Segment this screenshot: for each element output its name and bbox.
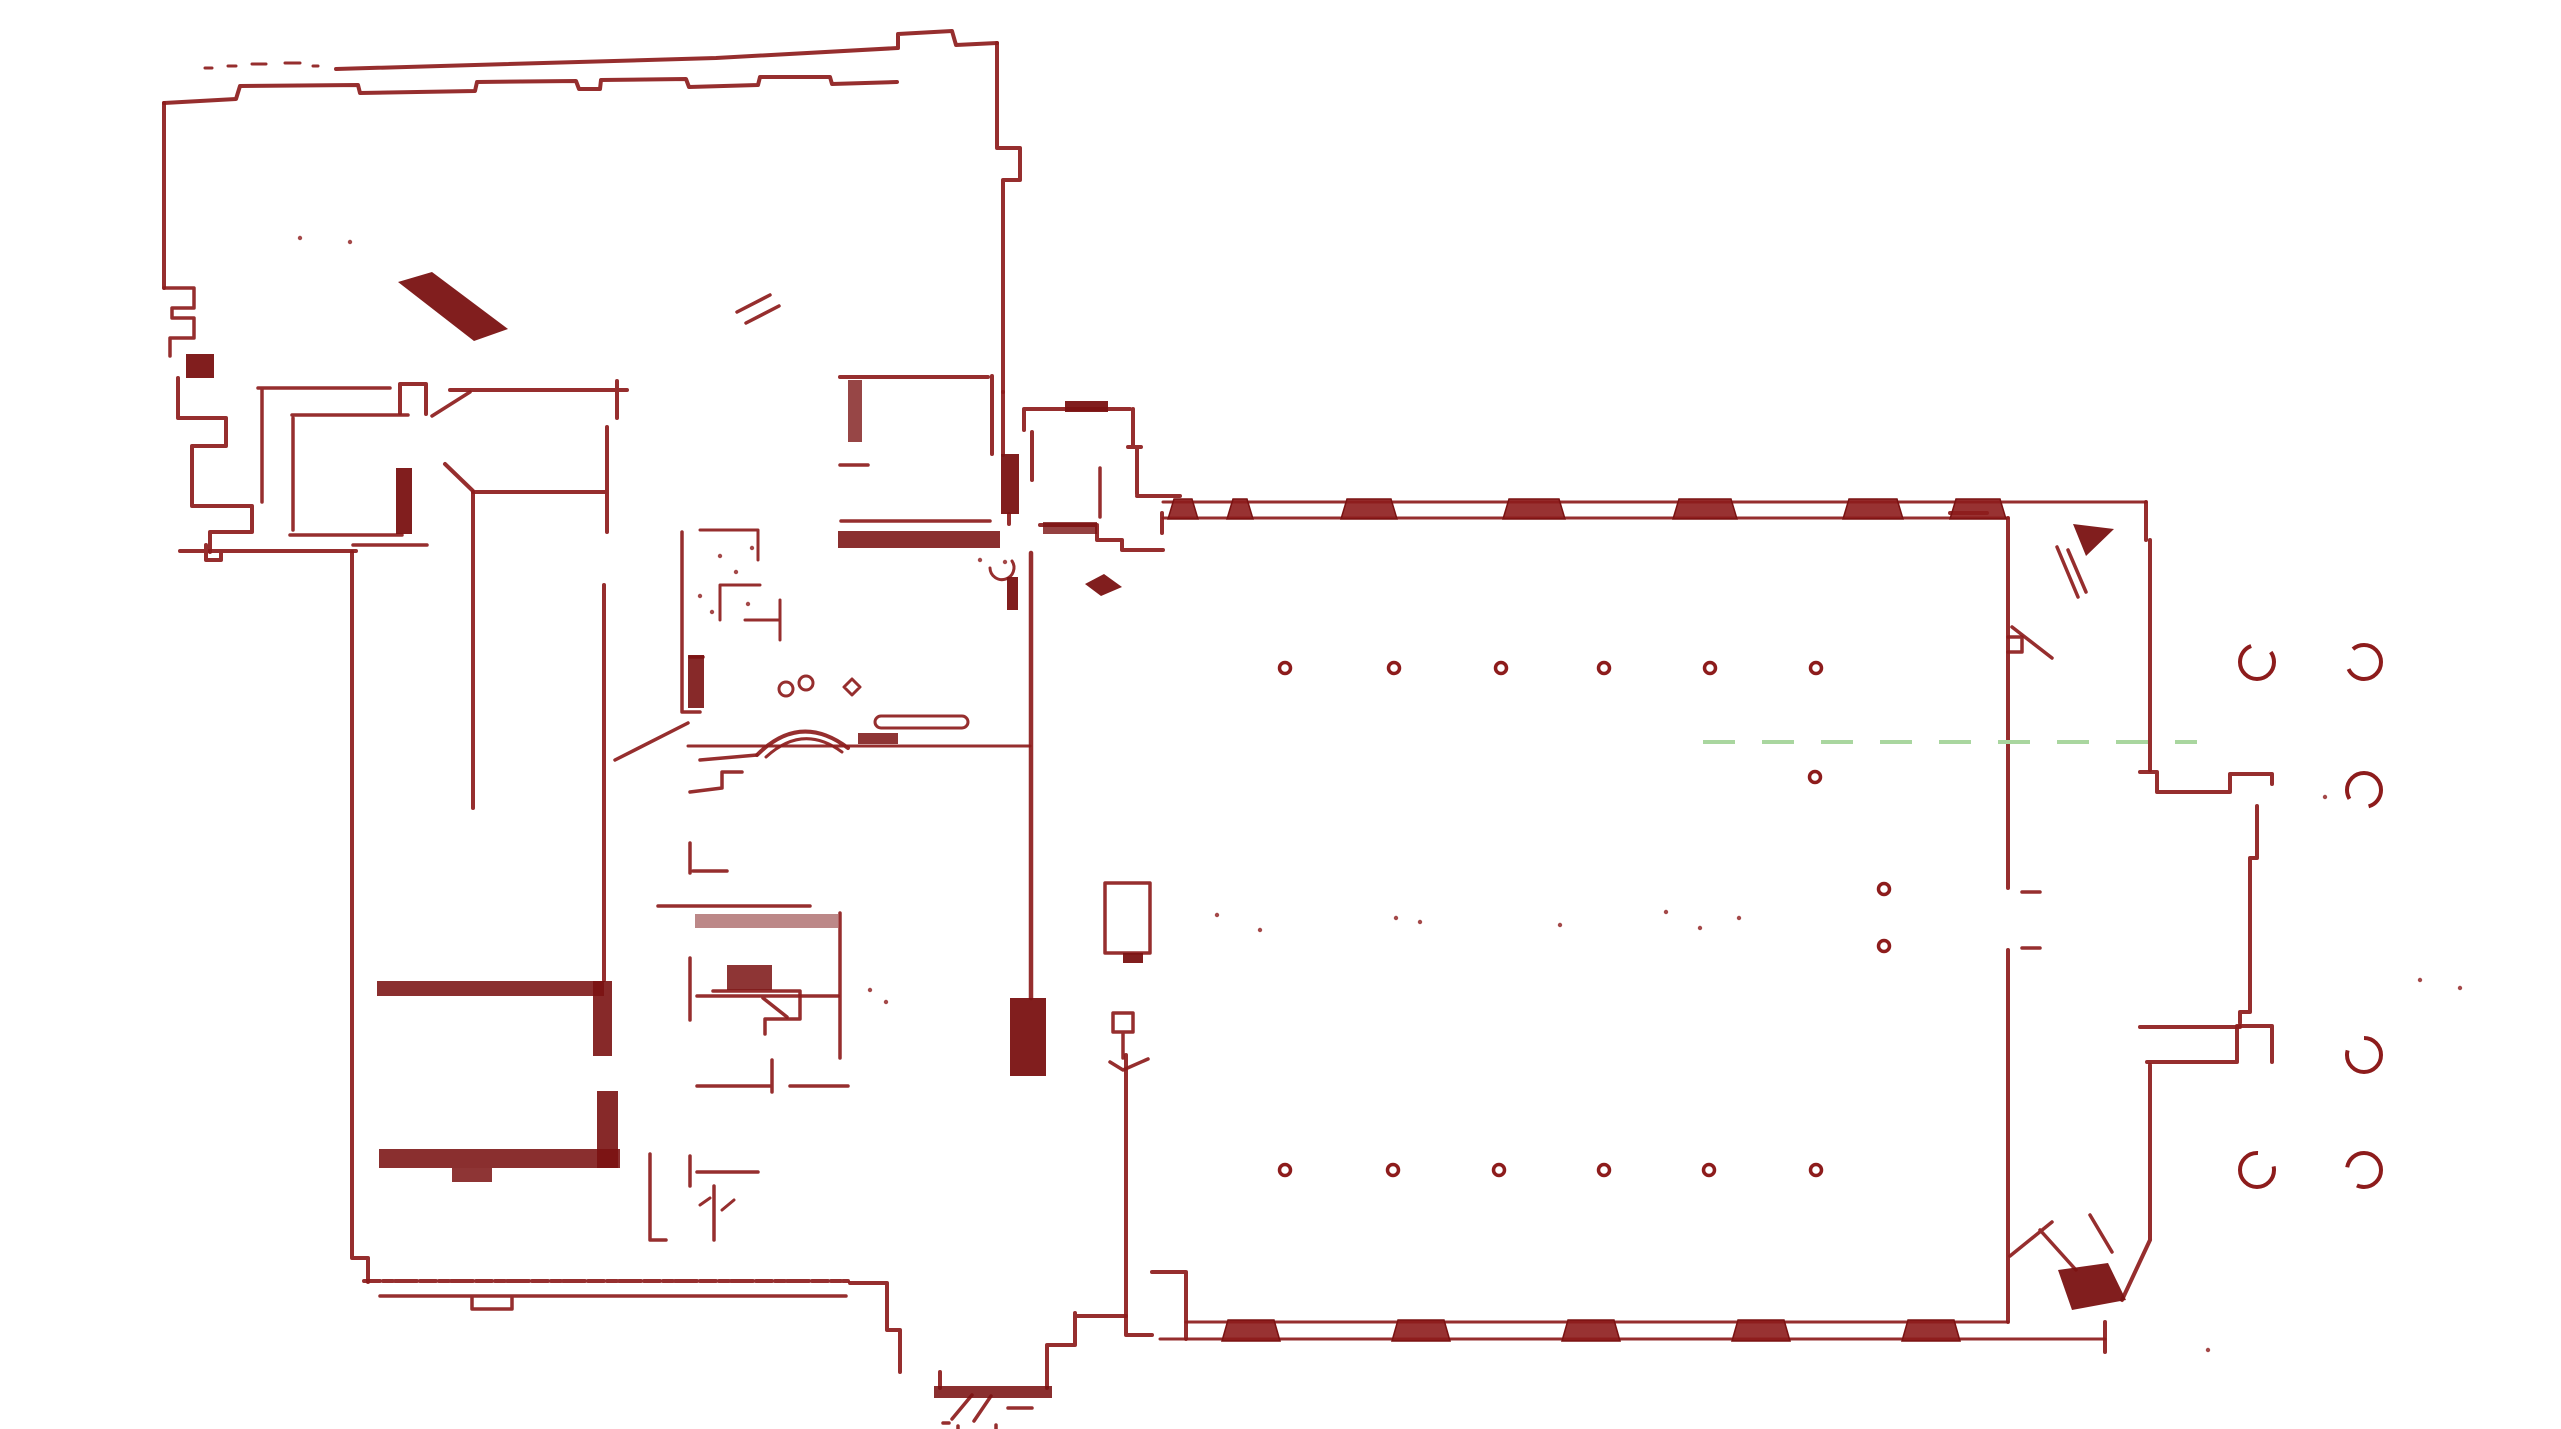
wall-segment bbox=[164, 288, 194, 356]
noise-speck bbox=[1418, 920, 1422, 924]
column-dot bbox=[1389, 663, 1400, 674]
wall-segment bbox=[292, 415, 408, 530]
noise-speck bbox=[710, 610, 714, 614]
portico-column bbox=[2347, 645, 2381, 679]
noise-speck bbox=[2418, 978, 2422, 982]
wall-segment bbox=[700, 530, 780, 640]
noise-speck bbox=[2206, 1348, 2210, 1352]
noise-speck bbox=[734, 570, 738, 574]
solid-wall-block bbox=[597, 1091, 618, 1168]
wall-pier bbox=[1392, 1320, 1450, 1341]
wall-segment bbox=[1105, 883, 1150, 953]
solid-wall-block bbox=[1123, 953, 1143, 963]
wall-segment bbox=[2105, 1065, 2150, 1352]
solid-wall-block bbox=[2073, 524, 2114, 556]
wall-segment bbox=[850, 1283, 1126, 1388]
wall-segment bbox=[290, 535, 427, 545]
wall-segment bbox=[2140, 806, 2257, 1027]
wall-segment bbox=[178, 378, 252, 552]
column-dot bbox=[1879, 941, 1890, 952]
wall-segment bbox=[697, 996, 838, 1017]
floor-plan-canvas bbox=[0, 0, 2561, 1429]
wall-segment bbox=[164, 77, 897, 103]
wall-segment bbox=[779, 676, 860, 696]
wall-segment bbox=[2008, 637, 2022, 652]
wall-segment bbox=[700, 1198, 734, 1210]
wall-segment bbox=[737, 295, 779, 323]
wall-segment bbox=[690, 755, 757, 792]
solid-wall-block bbox=[934, 1386, 1052, 1398]
wall-segment bbox=[1950, 502, 2150, 770]
noise-speck bbox=[1394, 916, 1398, 920]
column-dot bbox=[1811, 1165, 1822, 1176]
portico-column bbox=[2347, 773, 2381, 807]
wall-segment bbox=[380, 1296, 846, 1309]
wall-segment bbox=[943, 1395, 1032, 1429]
solid-wall-block bbox=[2058, 1263, 2126, 1310]
wall-pier bbox=[1503, 499, 1565, 519]
wall-segment bbox=[615, 723, 688, 760]
small-column-dots bbox=[1280, 663, 1890, 1176]
solid-wall-block bbox=[1001, 454, 1019, 514]
wall-segment bbox=[1126, 1055, 1152, 1335]
column-dot bbox=[1388, 1165, 1399, 1176]
noise-speck bbox=[1737, 916, 1741, 920]
column-dot bbox=[1599, 1165, 1610, 1176]
wall-segment bbox=[2010, 1215, 2112, 1270]
nave-wall-piers bbox=[1168, 499, 2006, 1341]
column-dot bbox=[1810, 772, 1821, 783]
solid-wall-block bbox=[838, 531, 1000, 548]
solid-wall-block bbox=[186, 354, 214, 378]
solid-wall-block bbox=[858, 733, 898, 744]
noise-speck bbox=[750, 546, 754, 550]
wall-lines bbox=[164, 31, 2272, 1429]
noise-speck bbox=[2323, 795, 2327, 799]
noise-speck bbox=[298, 236, 302, 240]
noise-speck bbox=[698, 594, 702, 598]
wall-segment bbox=[180, 545, 356, 560]
portico-column bbox=[2347, 1153, 2381, 1187]
floor-plan-page bbox=[0, 0, 2561, 1429]
solid-wall-block bbox=[695, 914, 838, 928]
solid-wall-block bbox=[1085, 574, 1122, 596]
column-dot bbox=[1705, 663, 1716, 674]
portico-column-circles bbox=[2240, 645, 2381, 1187]
solid-wall-block bbox=[688, 655, 704, 708]
portico-column bbox=[2240, 645, 2274, 679]
column-dot bbox=[1494, 1165, 1505, 1176]
solid-wall-block bbox=[1010, 998, 1046, 1076]
portico-column bbox=[2347, 1038, 2381, 1072]
noise-speck bbox=[718, 554, 722, 558]
wall-segment bbox=[875, 716, 968, 728]
wall-segment bbox=[658, 843, 840, 1058]
solid-wall-block bbox=[1007, 577, 1018, 610]
wall-pier bbox=[1950, 499, 2006, 519]
wall-segment bbox=[2022, 892, 2040, 948]
noise-speck bbox=[884, 1000, 888, 1004]
wall-pier bbox=[1902, 1320, 1960, 1341]
scan-noise-specks bbox=[298, 236, 2462, 1352]
wall-segment bbox=[990, 561, 1014, 580]
wall-segment bbox=[1024, 409, 1180, 496]
noise-speck bbox=[746, 602, 750, 606]
column-dot bbox=[1496, 663, 1507, 674]
solid-wall-block bbox=[452, 1168, 492, 1182]
solid-wall-block bbox=[398, 272, 508, 341]
wall-segment bbox=[1110, 1013, 1148, 1070]
noise-speck bbox=[2458, 986, 2462, 990]
wall-segment bbox=[205, 63, 318, 68]
column-dot bbox=[1280, 1165, 1291, 1176]
noise-speck bbox=[1698, 926, 1702, 930]
wall-segment bbox=[2140, 772, 2272, 792]
noise-speck bbox=[1003, 560, 1007, 564]
wall-segment bbox=[650, 1154, 758, 1240]
column-dot bbox=[1280, 663, 1291, 674]
solid-wall-block bbox=[396, 468, 412, 534]
noise-speck bbox=[978, 558, 982, 562]
wall-segment bbox=[450, 381, 627, 418]
solid-wall-block bbox=[377, 981, 604, 996]
noise-speck bbox=[868, 988, 872, 992]
solid-wall-block bbox=[1065, 401, 1108, 412]
noise-speck bbox=[348, 240, 352, 244]
solid-wall-block bbox=[1043, 522, 1097, 534]
solid-wall-block bbox=[848, 380, 862, 442]
noise-speck bbox=[1664, 910, 1668, 914]
wall-pier bbox=[1732, 1320, 1790, 1341]
wall-pier bbox=[1562, 1320, 1620, 1341]
wall-pier bbox=[1168, 499, 1198, 519]
column-dot bbox=[1811, 663, 1822, 674]
wall-segment bbox=[432, 392, 470, 416]
noise-speck bbox=[1215, 913, 1219, 917]
column-dot bbox=[1704, 1165, 1715, 1176]
wall-segment bbox=[352, 552, 368, 1282]
wall-pier bbox=[1843, 499, 1903, 519]
solid-wall-block bbox=[593, 981, 612, 1056]
column-dot bbox=[1599, 663, 1610, 674]
noise-speck bbox=[1558, 923, 1562, 927]
wall-segment bbox=[258, 388, 390, 502]
column-dot bbox=[1879, 884, 1890, 895]
portico-column bbox=[2240, 1153, 2274, 1187]
wall-solid-blocks bbox=[186, 272, 2126, 1398]
wall-pier bbox=[1673, 499, 1737, 519]
wall-segment bbox=[400, 384, 426, 414]
wall-pier bbox=[1341, 499, 1397, 519]
solid-wall-block bbox=[727, 965, 772, 990]
wall-segment bbox=[997, 43, 1020, 392]
wall-segment bbox=[2147, 1026, 2272, 1062]
solid-wall-block bbox=[379, 1149, 620, 1168]
wall-pier bbox=[1222, 1320, 1280, 1341]
wall-segment bbox=[445, 427, 607, 532]
noise-speck bbox=[1258, 928, 1262, 932]
wall-segment bbox=[1152, 1272, 1186, 1339]
wall-segment bbox=[336, 31, 997, 69]
